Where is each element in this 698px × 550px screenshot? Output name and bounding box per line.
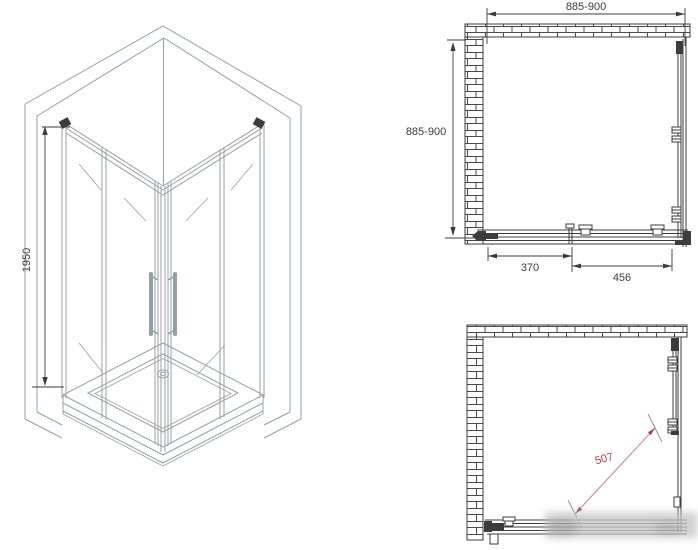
left-track-bracket [484, 521, 492, 532]
height-dimension: 1950 [21, 126, 70, 387]
diagonal-opening-dimension: 507 [568, 414, 662, 528]
top-width-dimension-label: 885-900 [566, 1, 606, 13]
segment-456-label: 456 [613, 272, 631, 284]
glass-enclosure-frame [59, 117, 266, 452]
isometric-view: 1950 [0, 0, 360, 550]
glass-panels-plan [472, 37, 691, 247]
plan-view-top: 885-900 885-900 370 456 [395, 0, 698, 300]
roller-carriage [651, 225, 664, 229]
segment-370-label: 370 [521, 262, 539, 274]
roller-carriage [579, 225, 592, 229]
brick-walls [465, 24, 690, 244]
roller-carriage [503, 517, 515, 521]
height-dimension-label: 1950 [21, 248, 33, 272]
left-depth-dimension-label: 885-900 [406, 126, 446, 138]
right-corner-bracket [253, 117, 266, 129]
left-track-bracket [478, 231, 486, 241]
shower-tray [63, 343, 263, 466]
bottom-segment-dimensions: 370 456 [488, 247, 672, 284]
corner-bracket [683, 231, 691, 245]
wall-profile-bracket [676, 41, 683, 54]
handle-profile [490, 534, 498, 544]
glass-reflection-marks [79, 164, 253, 375]
drain [158, 370, 169, 378]
brick-walls [467, 325, 687, 540]
diagonal-dimension-label: 507 [594, 451, 615, 467]
plan-view-bottom: 507 [440, 300, 698, 550]
watermark-blur [545, 512, 698, 538]
technical-drawing-canvas: 1950 [0, 0, 698, 550]
panel-clip [674, 497, 680, 507]
wall-profile-bracket [671, 338, 679, 351]
